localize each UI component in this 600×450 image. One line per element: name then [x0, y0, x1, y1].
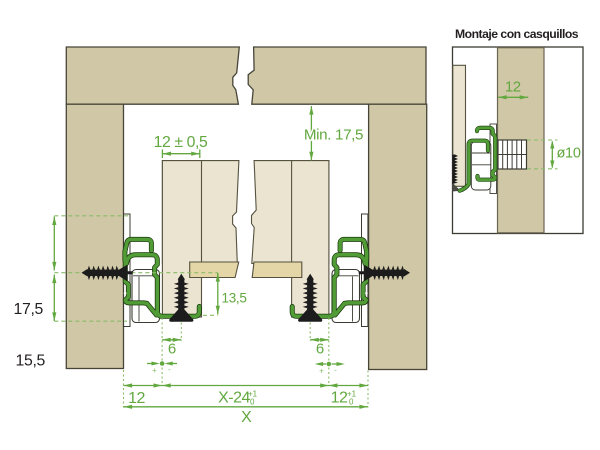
- svg-text:6: 6: [316, 341, 324, 358]
- svg-text:Montaje con casquillos: Montaje con casquillos: [455, 27, 579, 41]
- svg-text:+: +: [152, 366, 157, 375]
- svg-text:X: X: [241, 409, 252, 426]
- svg-text:6: 6: [168, 341, 176, 358]
- svg-text:12: 12: [505, 79, 521, 96]
- svg-text:12: 12: [128, 390, 145, 407]
- svg-text:ø10: ø10: [557, 146, 581, 162]
- svg-text:0: 0: [349, 398, 354, 407]
- svg-text:17,5: 17,5: [14, 301, 44, 318]
- svg-text:+: +: [319, 367, 324, 376]
- svg-text:13,5: 13,5: [222, 291, 247, 306]
- svg-text:12: 12: [331, 390, 348, 407]
- svg-text:X-24: X-24: [218, 390, 250, 407]
- svg-text:12 ± 0,5: 12 ± 0,5: [154, 134, 208, 151]
- svg-text:15,5: 15,5: [16, 353, 46, 370]
- svg-text:-: -: [168, 365, 171, 374]
- svg-text:0: 0: [250, 398, 255, 407]
- svg-text:Min. 17,5: Min. 17,5: [304, 127, 363, 144]
- svg-text:-: -: [334, 366, 337, 375]
